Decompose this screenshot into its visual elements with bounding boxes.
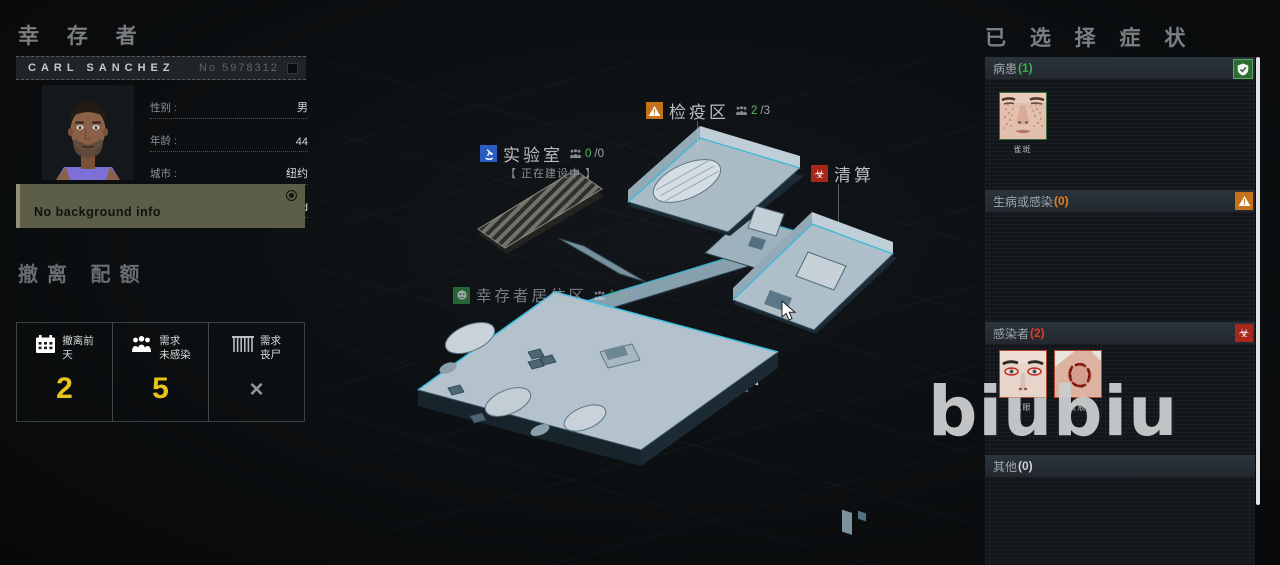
liquidation-leader-line [838, 184, 839, 242]
biohazard-icon: ☣ [1235, 324, 1253, 342]
map-label-residence[interactable]: 幸存者居住区 1/6 [453, 284, 628, 306]
selected-symptoms-title: 已 选 择 症 状 [985, 22, 1194, 52]
field-row-gender: 性别 : 男 [150, 86, 308, 119]
people-icon [130, 335, 153, 352]
section-body-other [985, 477, 1255, 565]
record-icon [286, 190, 297, 201]
people-icon [569, 149, 582, 158]
field-row-city: 城市 : 纽约 [150, 152, 308, 185]
quota-uninfected-value: 5 [152, 372, 169, 406]
survivor-mask-icon [453, 287, 470, 304]
warning-icon [646, 102, 663, 119]
warning-icon [1235, 192, 1253, 210]
quarantine-leader-line [697, 121, 698, 151]
map-residence-platform[interactable] [418, 292, 778, 466]
survivor-portrait [42, 85, 134, 180]
quota-days-before-evac: 撤离前天 2 [17, 323, 112, 421]
iso-grid [320, 60, 980, 565]
base-map[interactable] [320, 60, 980, 565]
survivor-name-bar: CARL SANCHEZ No 5978312 [16, 56, 306, 80]
calendar-icon [35, 335, 56, 354]
watermark: biubiu [928, 372, 1178, 452]
lab-construction-status: 【 正在建设中 】 [505, 165, 597, 181]
background-info-text: No background info [34, 205, 161, 219]
background-info-box: No background info [16, 184, 305, 228]
shield-check-icon [1233, 59, 1253, 79]
map-corridor-lab [558, 238, 646, 282]
symptoms-scrollbar[interactable] [1256, 57, 1260, 505]
fence-icon [232, 335, 254, 352]
microscope-icon [480, 145, 497, 162]
quota-zombies-needed: 需求丧尸 × [208, 323, 304, 421]
people-icon [735, 106, 748, 115]
section-header-patient[interactable]: 病患 (1) [985, 57, 1255, 79]
evacuation-quota-box: 撤离前天 2 需求未感染 5 需求丧尸 [16, 322, 305, 422]
section-body-sick-or-infected [985, 212, 1255, 322]
evacuation-quota-title: 撤离 配额 [18, 258, 149, 287]
field-row-age: 年龄 : 44 [150, 119, 308, 152]
survivor-name: CARL SANCHEZ [16, 62, 199, 74]
biohazard-icon: ☣ [811, 165, 828, 182]
map-label-quarantine[interactable]: 检疫区 2/3 [646, 98, 770, 123]
map-label-lab[interactable]: 实验室 0/0 [480, 141, 604, 166]
survivor-panel-title: 幸 存 者 [18, 20, 148, 50]
quota-days-value: 2 [56, 372, 73, 406]
game-screen: 实验室 0/0 【 正在建设中 】 检疫区 2/3 ☣ 清算 [0, 0, 1280, 565]
section-header-other[interactable]: 其他 (0) [985, 455, 1255, 477]
mouse-cursor [781, 300, 799, 322]
map-lab-construction-pad[interactable] [478, 170, 604, 254]
quota-zombies-value: × [249, 376, 263, 404]
freckles-image [999, 92, 1047, 140]
people-icon [593, 291, 606, 300]
quota-uninfected-needed: 需求未感染 5 [112, 323, 208, 421]
map-label-liquidation[interactable]: ☣ 清算 [811, 161, 874, 186]
section-body-patient: 雀斑 [985, 79, 1255, 190]
name-bar-marker-icon[interactable] [287, 63, 298, 74]
section-header-sick-or-infected[interactable]: 生病或感染 (0) [985, 190, 1255, 212]
section-header-infected[interactable]: 感染者 (2) ☣ [985, 322, 1255, 344]
symptom-card-freckles[interactable]: 雀斑 [999, 92, 1046, 155]
survivor-id: No 5978312 [199, 62, 287, 74]
